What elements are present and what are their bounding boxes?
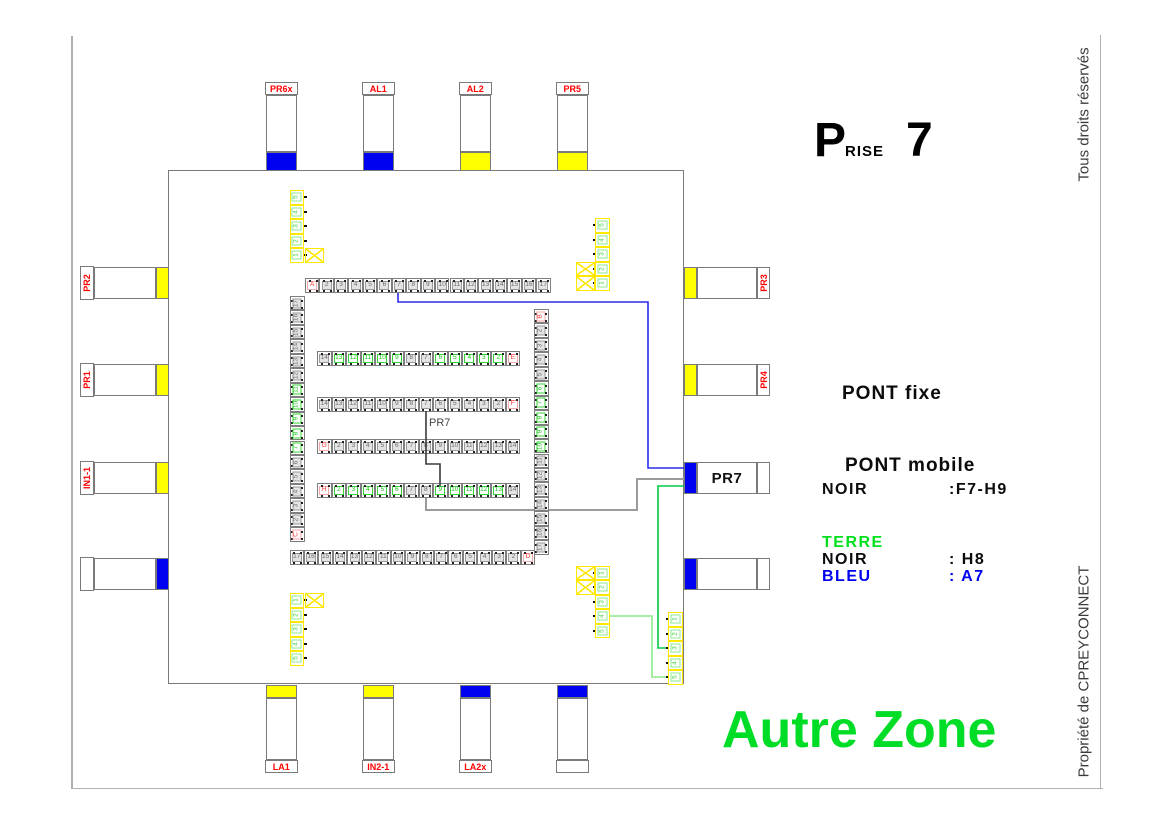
terminal-cell-f-2: 2	[491, 397, 506, 412]
terminal-cell-label: 6	[435, 354, 445, 363]
terminal-cell-rc-16: 16	[534, 526, 549, 540]
terminal-cell-a-2: 2	[319, 278, 333, 293]
terminal-cell-label: 7	[406, 486, 416, 495]
terminal-cell-label: 4	[293, 486, 302, 496]
terminal-cell-label: 5	[377, 486, 387, 495]
terminal-cell-d-6: 6	[448, 550, 462, 565]
connector-label	[80, 557, 94, 591]
terminal-cell-rc-11: 11	[534, 454, 549, 468]
connector-body	[363, 95, 394, 152]
terminal-cell-f-F: F	[506, 397, 521, 412]
terminal-cell-a-14: 14	[493, 278, 507, 293]
connector-left-PR1: PR1	[80, 363, 169, 397]
terminal-cell-a-12: 12	[464, 278, 478, 293]
terminal-cell-label: 9	[435, 486, 445, 495]
terminal-cell-g-9: 9	[433, 439, 448, 454]
terminal-cell-label: 6	[435, 400, 445, 409]
connector-strip	[684, 364, 697, 396]
earth-cell-label: 1	[597, 568, 607, 577]
earth-cell-label: 3	[292, 222, 302, 231]
wire-green-terre-b	[609, 616, 667, 677]
drawing-page: P RISE 7 Tous droits réservés Propriété …	[0, 0, 1169, 826]
connector-strip	[156, 558, 169, 590]
earth-cell-label: 5	[292, 654, 302, 663]
terminal-cell-h-2: 2	[332, 483, 347, 498]
connector-left-unlabeled	[80, 557, 169, 591]
terminal-cell-label: G	[319, 442, 329, 451]
terminal-cell-d-8: 8	[420, 550, 434, 565]
terminal-cell-d-3: 3	[492, 550, 506, 565]
terminal-cell-d-10: 10	[391, 550, 405, 565]
terminal-cell-label: 14	[508, 442, 518, 451]
terminal-cell-label: 2	[334, 486, 344, 495]
terminal-cell-label: 8	[406, 354, 416, 363]
terminal-cell-label: 11	[363, 354, 373, 363]
terminal-cell-label: 3	[348, 442, 358, 451]
terminal-cell-label: 12	[466, 281, 476, 290]
earth-cell-bottom-right-b-1: 1	[668, 612, 683, 627]
terminal-cell-label: A	[307, 281, 317, 290]
earth-cell-bottom-right-a-5: 5	[595, 624, 610, 639]
terminal-cell-f-3: 3	[477, 397, 492, 412]
terminal-cell-label: 3	[293, 501, 302, 511]
terminal-cell-f-10: 10	[375, 397, 390, 412]
terminal-cell-label: 10	[450, 486, 460, 495]
terminal-cell-label: 8	[408, 281, 418, 290]
connector-label: LA1	[265, 760, 298, 773]
terminal-cell-f-14: 14	[317, 397, 332, 412]
terminal-cell-label: 3	[479, 400, 489, 409]
terminal-cell-label: 4	[464, 400, 474, 409]
terminal-cell-label: 7	[537, 398, 546, 408]
terminal-cell-label: 13	[493, 486, 503, 495]
connector-strip	[557, 685, 588, 698]
earth-cell-label: 2	[670, 629, 680, 638]
terminal-cell-rc-13: 13	[534, 482, 549, 496]
terminal-cell-lc-2: 2	[290, 513, 305, 527]
earth-cell-top-left-3: 3	[290, 219, 305, 234]
terminal-cell-a-17: 17	[536, 278, 550, 293]
terminal-cell-f-9: 9	[390, 397, 405, 412]
earth-cell-label: 5	[597, 221, 607, 230]
terminal-cell-label: 7	[394, 281, 404, 290]
terminal-cell-label: 10	[450, 442, 460, 451]
terminal-cell-rc-10: 10	[534, 439, 549, 453]
connector-top-AL2: AL2	[459, 82, 492, 171]
terminal-cell-rc-3: 3	[534, 338, 549, 352]
terminal-cell-label: 15	[510, 281, 520, 290]
connector-endbox: PR4	[757, 364, 770, 396]
terminal-cell-label: 5	[293, 472, 302, 482]
terminal-cell-label: 8	[406, 400, 416, 409]
terminal-cell-label: B	[537, 311, 546, 321]
terminal-cell-label: 11	[537, 456, 546, 466]
earth-cell-label: 5	[597, 626, 607, 635]
terminal-cell-label: 4	[537, 355, 546, 365]
terminal-cell-label: 6	[392, 442, 402, 451]
inner-wire-label: PR7	[429, 417, 450, 429]
connector-right-unlabeled	[684, 557, 770, 591]
terminal-cell-rc-15: 15	[534, 511, 549, 525]
terminal-cell-label: 2	[493, 400, 503, 409]
earth-cell-bottom-left-4: 4	[290, 637, 305, 652]
terminal-cell-label: 9	[392, 354, 402, 363]
terminal-cell-label: 13	[537, 485, 546, 495]
terminal-cell-label: 13	[293, 356, 302, 366]
earth-cell-label: 2	[292, 236, 302, 245]
terminal-cell-h-5: 5	[375, 483, 390, 498]
terminal-cell-label: 11	[293, 385, 302, 395]
earth-cell-top-right-4: 4	[595, 233, 610, 248]
earth-cell-label: 1	[292, 251, 302, 260]
terminal-cell-label: 4	[464, 354, 474, 363]
terminal-cell-e-8: 8	[404, 351, 419, 366]
connector-strip	[266, 685, 297, 698]
terminal-cell-label: 13	[334, 400, 344, 409]
connector-label-text: PR4	[759, 371, 769, 389]
terminal-cell-label: 6	[537, 383, 546, 393]
terminal-cell-f-13: 13	[332, 397, 347, 412]
terminal-cell-label: 10	[293, 399, 302, 409]
earth-cell-label: 2	[597, 264, 607, 273]
connector-label: LA2x	[459, 760, 492, 773]
terminal-cell-label: 10	[377, 400, 387, 409]
terminal-cell-label: 14	[319, 354, 329, 363]
connector-body	[460, 698, 491, 760]
connector-strip	[156, 364, 169, 396]
terminal-cell-h-H: H	[317, 483, 332, 498]
terminal-cell-h-13: 13	[491, 483, 506, 498]
terminal-cell-d-12: 12	[362, 550, 376, 565]
terminal-cell-f-12: 12	[346, 397, 361, 412]
earth-cell-bottom-right-b-3: 3	[668, 641, 683, 656]
terminal-cell-label: 8	[422, 553, 432, 562]
terminal-cell-d-7: 7	[434, 550, 448, 565]
earth-xbox-bottom-left-0	[305, 593, 324, 608]
terminal-cell-rc-12: 12	[534, 468, 549, 482]
terminal-cell-g-6: 6	[390, 439, 405, 454]
diagram-layer: PR6xAL1AL2PR5LA1IN2-1LA2xPR2PR1IN1-1PR3P…	[0, 0, 1169, 826]
connector-top-AL1: AL1	[362, 82, 395, 171]
connector-strip	[684, 558, 697, 590]
connector-body	[460, 95, 491, 152]
terminal-cell-g-2: 2	[332, 439, 347, 454]
terminal-cell-label: 11	[452, 281, 462, 290]
connector-body	[557, 95, 588, 152]
terminal-cell-label: 8	[421, 442, 431, 451]
terminal-cell-g-3: 3	[346, 439, 361, 454]
connector-body: PR7	[697, 462, 757, 494]
terminal-cell-label: 14	[537, 499, 546, 509]
terminal-cell-e-10: 10	[375, 351, 390, 366]
connector-top-PR5: PR5	[556, 82, 589, 171]
terminal-cell-lc-C: C	[290, 527, 305, 541]
terminal-cell-g-13: 13	[491, 439, 506, 454]
terminal-cell-g-4: 4	[361, 439, 376, 454]
terminal-cell-lc-15: 15	[290, 325, 305, 339]
terminal-cell-label: 9	[537, 427, 546, 437]
terminal-cell-label: 7	[421, 354, 431, 363]
terminal-cell-a-6: 6	[377, 278, 391, 293]
terminal-cell-rc-8: 8	[534, 410, 549, 424]
terminal-cell-label: 7	[406, 442, 416, 451]
terminal-cell-label: 16	[524, 281, 534, 290]
terminal-cell-a-A: A	[305, 278, 319, 293]
terminal-cell-label: 3	[494, 553, 504, 562]
terminal-cell-label: 2	[322, 281, 332, 290]
terminal-cell-label: 12	[537, 470, 546, 480]
connector-label	[556, 760, 589, 773]
terminal-cell-a-5: 5	[363, 278, 377, 293]
terminal-cell-e-14: 14	[317, 351, 332, 366]
terminal-cell-label: 5	[465, 553, 475, 562]
terminal-cell-d-5: 5	[463, 550, 477, 565]
earth-cell-label: 4	[597, 612, 607, 621]
earth-xbox-bottom-right-a-1	[576, 580, 595, 595]
earth-cell-label: 1	[292, 596, 302, 605]
terminal-cell-d-11: 11	[376, 550, 390, 565]
connector-label: IN2-1	[362, 760, 395, 773]
terminal-cell-label: 6	[379, 281, 389, 290]
terminal-cell-lc-8: 8	[290, 426, 305, 440]
terminal-cell-label: 10	[377, 354, 387, 363]
connector-right-PR7: PR7	[684, 461, 770, 495]
terminal-cell-label: 16	[306, 553, 316, 562]
terminal-cell-d-13: 13	[347, 550, 361, 565]
connector-body	[697, 267, 757, 299]
earth-cell-label: 3	[597, 250, 607, 259]
connector-label-text: PR1	[82, 371, 92, 389]
terminal-cell-label: 3	[537, 340, 546, 350]
connector-bottom-LA2x: LA2x	[459, 685, 492, 773]
terminal-cell-e-9: 9	[390, 351, 405, 366]
terminal-cell-label: D	[523, 553, 533, 562]
terminal-cell-label: 11	[464, 486, 474, 495]
terminal-cell-e-E: E	[506, 351, 521, 366]
terminal-cell-g-G: G	[317, 439, 332, 454]
terminal-cell-label: 10	[537, 441, 546, 451]
terminal-cell-g-11: 11	[462, 439, 477, 454]
terminal-cell-lc-6: 6	[290, 455, 305, 469]
terminal-cell-e-11: 11	[361, 351, 376, 366]
terminal-cell-label: 12	[479, 486, 489, 495]
terminal-cell-e-7: 7	[419, 351, 434, 366]
earth-cell-label: 3	[670, 644, 680, 653]
terminal-cell-label: 3	[336, 281, 346, 290]
terminal-cell-rc-14: 14	[534, 497, 549, 511]
terminal-cell-e-12: 12	[346, 351, 361, 366]
terminal-cell-label: 6	[451, 553, 461, 562]
earth-cell-bottom-right-a-2: 2	[595, 580, 610, 595]
earth-cell-bottom-right-b-4: 4	[668, 656, 683, 671]
terminal-cell-g-12: 12	[477, 439, 492, 454]
terminal-cell-h-9: 9	[433, 483, 448, 498]
terminal-cell-e-13: 13	[332, 351, 347, 366]
terminal-cell-d-14: 14	[333, 550, 347, 565]
connector-left-PR2: PR2	[80, 266, 169, 300]
terminal-cell-label: 15	[537, 514, 546, 524]
terminal-cell-rc-2: 2	[534, 323, 549, 337]
terminal-cell-d-17: 17	[290, 550, 304, 565]
terminal-cell-g-8: 8	[419, 439, 434, 454]
terminal-cell-label: 11	[378, 553, 388, 562]
terminal-cell-lc-9: 9	[290, 412, 305, 426]
connector-label: PR1	[80, 363, 94, 397]
earth-cell-label: 3	[292, 625, 302, 634]
connector-bottom-unlabeled	[556, 685, 589, 773]
terminal-cell-rc-7: 7	[534, 396, 549, 410]
earth-xbox-top-left-0	[305, 248, 324, 263]
connector-body	[697, 364, 757, 396]
connector-label: PR2	[80, 266, 94, 300]
terminal-cell-h-7: 7	[404, 483, 419, 498]
terminal-cell-label: 17	[537, 542, 546, 552]
earth-cell-top-left-2: 2	[290, 234, 305, 249]
terminal-cell-h-10: 10	[448, 483, 463, 498]
terminal-cell-rc-4: 4	[534, 352, 549, 366]
earth-cell-bottom-left-1: 1	[290, 593, 305, 608]
terminal-cell-label: 5	[450, 354, 460, 363]
terminal-cell-lc-10: 10	[290, 397, 305, 411]
terminal-cell-label: 5	[365, 281, 375, 290]
terminal-cell-lc-14: 14	[290, 339, 305, 353]
earth-cell-top-right-5: 5	[595, 218, 610, 233]
connector-label: PR6x	[265, 82, 298, 95]
connector-left-IN1-1: IN1-1	[80, 461, 169, 495]
terminal-cell-label: 7	[421, 400, 431, 409]
terminal-cell-lc-12: 12	[290, 368, 305, 382]
terminal-cell-label: 11	[464, 442, 474, 451]
terminal-cell-label: 8	[421, 486, 431, 495]
terminal-cell-f-11: 11	[361, 397, 376, 412]
terminal-cell-rc-9: 9	[534, 425, 549, 439]
connector-endbox	[757, 462, 770, 494]
connector-body	[94, 267, 156, 299]
terminal-cell-label: 14	[335, 553, 345, 562]
terminal-cell-label: 4	[363, 486, 373, 495]
terminal-cell-f-8: 8	[404, 397, 419, 412]
terminal-cell-label: 5	[377, 442, 387, 451]
terminal-cell-rc-17: 17	[534, 540, 549, 554]
terminal-cell-e-6: 6	[433, 351, 448, 366]
earth-cell-label: 4	[597, 235, 607, 244]
earth-cell-label: 1	[597, 279, 607, 288]
terminal-cell-label: E	[508, 354, 518, 363]
terminal-cell-a-9: 9	[421, 278, 435, 293]
terminal-cell-label: 9	[293, 414, 302, 424]
connector-endbox: PR3	[757, 267, 770, 299]
terminal-cell-lc-4: 4	[290, 484, 305, 498]
terminal-cell-label: 12	[293, 370, 302, 380]
terminal-cell-label: 6	[293, 457, 302, 467]
connector-strip	[684, 267, 697, 299]
earth-cell-label: 4	[292, 639, 302, 648]
terminal-cell-label: 12	[348, 354, 358, 363]
terminal-cell-label: 3	[348, 486, 358, 495]
earth-cell-label: 5	[670, 673, 680, 682]
terminal-cell-a-3: 3	[334, 278, 348, 293]
terminal-cell-label: 17	[292, 553, 302, 562]
terminal-cell-a-15: 15	[507, 278, 521, 293]
terminal-cell-e-2: 2	[491, 351, 506, 366]
earth-cell-bottom-right-a-1: 1	[595, 566, 610, 581]
terminal-cell-label: C	[293, 529, 302, 539]
earth-cell-bottom-right-b-2: 2	[668, 627, 683, 642]
terminal-cell-g-5: 5	[375, 439, 390, 454]
earth-cell-bottom-right-a-4: 4	[595, 609, 610, 624]
earth-cell-top-left-1: 1	[290, 248, 305, 263]
terminal-cell-label: 13	[350, 553, 360, 562]
connector-body	[363, 698, 394, 760]
earth-cell-label: 4	[670, 658, 680, 667]
terminal-cell-label: 17	[538, 281, 548, 290]
terminal-cell-label: 13	[334, 354, 344, 363]
terminal-cell-label: 10	[437, 281, 447, 290]
terminal-cell-a-10: 10	[435, 278, 449, 293]
earth-xbox-bottom-right-a-0	[576, 566, 595, 581]
terminal-cell-e-4: 4	[462, 351, 477, 366]
earth-cell-label: 2	[292, 610, 302, 619]
terminal-cell-rc-B: B	[534, 309, 549, 323]
terminal-cell-label: 9	[435, 442, 445, 451]
connector-top-PR6x: PR6x	[265, 82, 298, 171]
connector-strip	[266, 152, 297, 171]
terminal-cell-label: 14	[319, 400, 329, 409]
terminal-cell-e-5: 5	[448, 351, 463, 366]
terminal-cell-rc-5: 5	[534, 367, 549, 381]
connector-label: IN1-1	[80, 461, 94, 495]
terminal-cell-label: 7	[293, 443, 302, 453]
earth-cell-top-left-4: 4	[290, 205, 305, 220]
terminal-cell-g-10: 10	[448, 439, 463, 454]
terminal-cell-f-7: 7	[419, 397, 434, 412]
terminal-cell-a-13: 13	[478, 278, 492, 293]
connector-right-PR4: PR4	[684, 363, 770, 397]
terminal-cell-label: 14	[495, 281, 505, 290]
terminal-cell-e-3: 3	[477, 351, 492, 366]
terminal-cell-label: F	[508, 400, 518, 409]
terminal-cell-label: 4	[480, 553, 490, 562]
terminal-cell-lc-5: 5	[290, 469, 305, 483]
earth-cell-bottom-right-b-5: 5	[668, 670, 683, 685]
terminal-cell-h-11: 11	[462, 483, 477, 498]
terminal-cell-label: 13	[493, 442, 503, 451]
connector-strip	[557, 152, 588, 171]
earth-cell-top-right-1: 1	[595, 276, 610, 291]
connector-body	[266, 95, 297, 152]
earth-cell-label: 3	[597, 597, 607, 606]
connector-body	[557, 698, 588, 760]
terminal-cell-a-11: 11	[450, 278, 464, 293]
terminal-cell-d-16: 16	[304, 550, 318, 565]
earth-cell-label: 1	[670, 615, 680, 624]
terminal-cell-label: 5	[537, 369, 546, 379]
terminal-cell-d-15: 15	[318, 550, 332, 565]
terminal-cell-label: 8	[293, 428, 302, 438]
terminal-cell-lc-13: 13	[290, 354, 305, 368]
earth-cell-bottom-left-2: 2	[290, 608, 305, 623]
terminal-cell-a-4: 4	[348, 278, 362, 293]
earth-cell-top-left-5: 5	[290, 190, 305, 205]
terminal-cell-h-4: 4	[361, 483, 376, 498]
terminal-cell-a-16: 16	[522, 278, 536, 293]
earth-cell-bottom-left-5: 5	[290, 651, 305, 666]
terminal-cell-label: 12	[348, 400, 358, 409]
terminal-cell-h-6: 6	[390, 483, 405, 498]
terminal-cell-label: 15	[293, 327, 302, 337]
terminal-cell-d-D: D	[521, 550, 535, 565]
terminal-cell-label: 2	[508, 553, 518, 562]
